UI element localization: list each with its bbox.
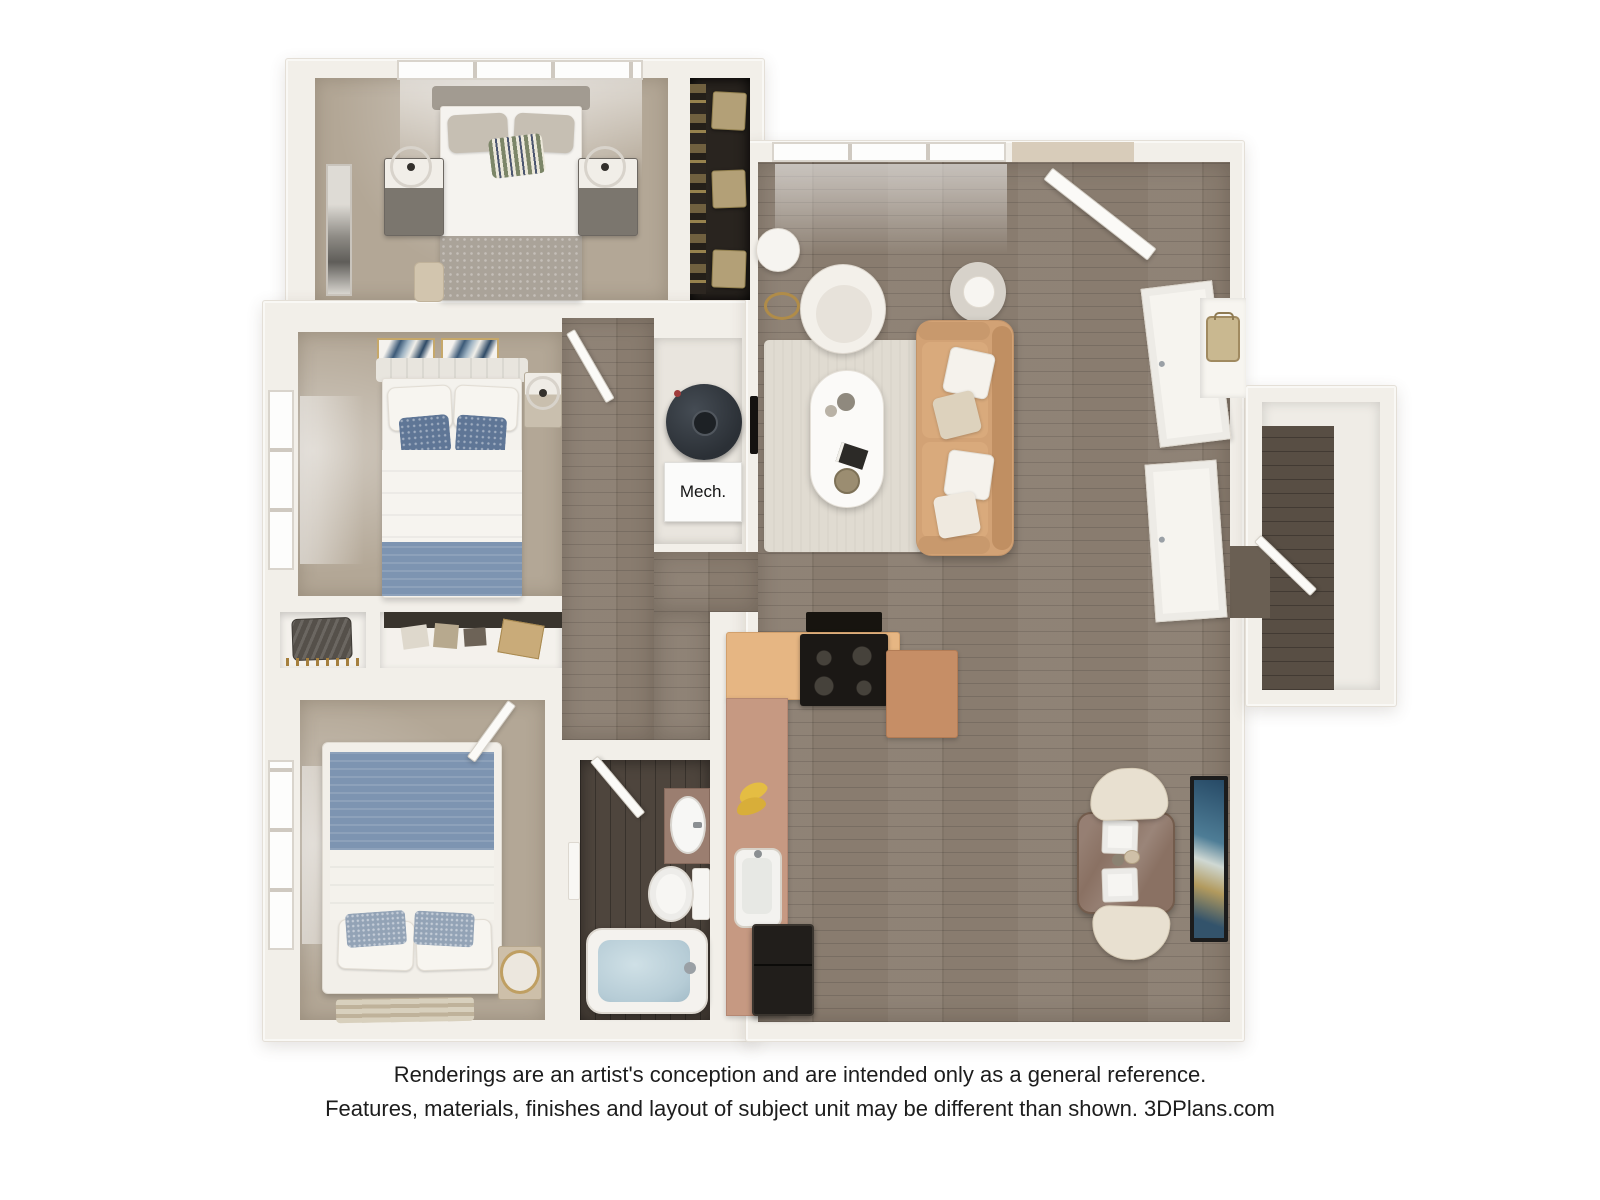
- sofa-pillow-4: [933, 491, 982, 540]
- living-room-windows: [772, 142, 1006, 162]
- closet2-folded-item-3: [463, 627, 486, 646]
- bedroom3-accent-pillow-right: [413, 910, 475, 947]
- gold-decor-ring: [764, 292, 800, 320]
- toilet-bowl: [648, 866, 694, 922]
- bedroom1-accent-pillow: [488, 133, 546, 179]
- floor-lamp-shade: [756, 228, 800, 272]
- bathroom-towel: [568, 842, 580, 900]
- closet2-hangers: [286, 658, 364, 666]
- round-armchair: [800, 264, 886, 354]
- dining-wall-art: [1190, 776, 1228, 942]
- gas-range: [800, 634, 888, 706]
- kitchen-sink: [734, 848, 782, 928]
- hallway-floor-south: [654, 552, 758, 612]
- closet1-hanging-clothes: [690, 84, 706, 294]
- bathtub-faucet: [684, 962, 696, 974]
- bedroom3-round-mirror: [500, 950, 540, 994]
- bedroom2-duvet: [382, 450, 522, 542]
- floor-plan-page: Mech. Renderings are an arti: [0, 0, 1600, 1200]
- sofa-arm-bottom: [918, 536, 990, 554]
- bathroom-sink: [670, 796, 706, 854]
- side-table-with-lamp: [950, 262, 1006, 322]
- range-hood: [806, 612, 882, 632]
- refrigerator: [752, 924, 814, 1016]
- disclaimer-line-1: Renderings are an artist's conception an…: [0, 1058, 1600, 1092]
- hallway-floor: [562, 318, 654, 740]
- disclaimer-line-2: Features, materials, finishes and layout…: [0, 1092, 1600, 1126]
- bedroom3-window: [268, 760, 294, 950]
- niche-bag: [1206, 316, 1240, 362]
- bedroom2-window: [268, 390, 294, 570]
- bedroom2-window-light: [300, 396, 364, 564]
- place-setting-2: [1101, 867, 1138, 902]
- closet1-storage-box-1: [711, 91, 747, 131]
- bedroom1-lamp-left: [390, 146, 432, 188]
- hall-closet-door-2: [1145, 460, 1228, 623]
- bedroom1-window: [397, 60, 643, 80]
- mech-closet-label: Mech.: [665, 463, 741, 521]
- storage-nook-door-opening: [1230, 546, 1270, 618]
- dining-bowl-2: [1112, 854, 1124, 866]
- bathtub-water: [598, 940, 690, 1002]
- bedroom3-blue-blanket: [330, 752, 494, 850]
- closet2-folded-item-1: [401, 624, 430, 649]
- bedroom1-foot-blanket: [440, 236, 582, 300]
- closet2-suitcase: [291, 617, 352, 661]
- dining-bowl-1: [1124, 850, 1140, 864]
- closet2-storage-box: [497, 619, 544, 660]
- bedroom3-duvet: [330, 850, 494, 920]
- wall-mounted-tv: [750, 396, 758, 454]
- hallway-floor-bath-approach: [654, 612, 710, 740]
- bedroom3-striped-rug: [336, 997, 474, 1023]
- water-heater: [666, 384, 742, 460]
- closet1-storage-box-2: [711, 169, 746, 208]
- living-room-window-light: [775, 164, 1007, 254]
- bedroom2-blue-blanket: [382, 542, 522, 596]
- entry-threshold: [1012, 142, 1134, 162]
- sofa-arm-top: [918, 322, 990, 340]
- mech-closet-box: Mech.: [664, 462, 742, 522]
- disclaimer: Renderings are an artist's conception an…: [0, 1058, 1600, 1126]
- bedroom1-lamp-right: [584, 146, 626, 188]
- toilet-tank: [692, 868, 710, 920]
- closet1-storage-box-3: [711, 249, 746, 288]
- closet2-folded-item-2: [433, 623, 459, 649]
- bedroom2-lamp: [526, 376, 560, 410]
- kitchen-peninsula: [886, 650, 958, 738]
- bedroom1-wall-art: [326, 164, 352, 296]
- coffee-table-tray: [834, 468, 860, 494]
- bedroom1-bench: [414, 262, 444, 302]
- bedroom3-accent-pillow-left: [345, 910, 407, 948]
